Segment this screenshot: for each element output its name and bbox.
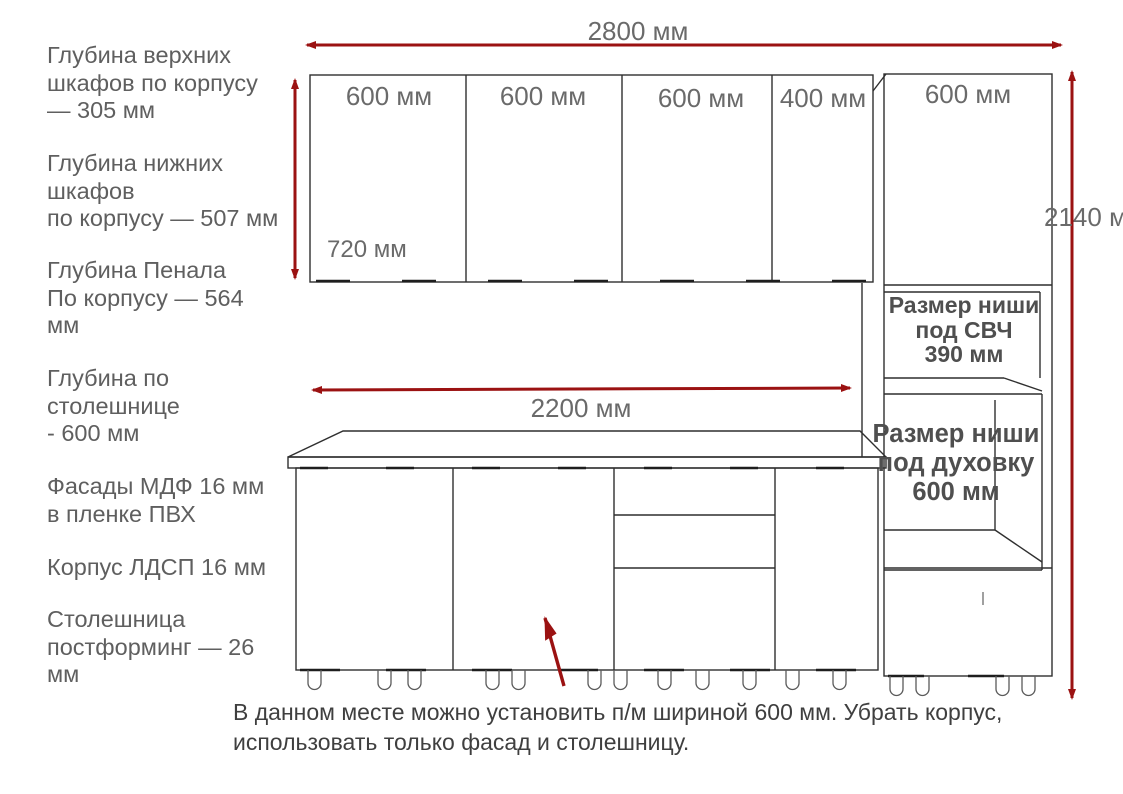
microwave-niche-label: Размер ниши под СВЧ 390 мм: [885, 293, 1043, 367]
dishwasher-note: В данном месте можно установить п/м шири…: [233, 697, 1073, 757]
note-pencil-depth: Глубина Пенала По корпусу — 564 мм: [47, 257, 305, 340]
total-height-label: 2140 мм: [1044, 202, 1123, 233]
countertop-width-arrow: [313, 388, 850, 390]
note-facades: Фасады МДФ 16 мм в пленке ПВХ: [47, 473, 305, 528]
dimension-arrows: [295, 45, 1072, 698]
upper-cabinet-width-label: 600 мм: [309, 81, 469, 112]
note-countertop-depth: Глубина по столешнице - 600 мм: [47, 365, 305, 448]
tall-cabinet-width-label: 600 мм: [888, 79, 1048, 110]
note-lower-depth: Глубина нижних шкафов по корпусу — 507 м…: [47, 150, 305, 233]
dishwasher-pointer-arrow: [545, 618, 564, 686]
upper-cabinet-width-label: 600 мм: [463, 81, 623, 112]
countertop-width-label: 2200 мм: [481, 393, 681, 424]
kitchen-drawing-page: Глубина верхних шкафов по корпусу — 305 …: [0, 0, 1123, 794]
base-cabinets: [296, 468, 878, 670]
cabinet-legs: [308, 670, 1035, 696]
note-worktop: Столешница постформинг — 26 мм: [47, 606, 305, 689]
upper-cabinet-width-label: 400 мм: [743, 83, 903, 114]
upper-cabinet-height-label: 720 мм: [327, 236, 437, 264]
total-width-label: 2800 мм: [538, 16, 738, 47]
countertop: [288, 431, 886, 468]
oven-niche-label: Размер ниши под духовку 600 мм: [866, 420, 1046, 507]
tall-cabinet: [862, 74, 1052, 676]
note-carcass: Корпус ЛДСП 16 мм: [47, 554, 305, 582]
cabinet-outlines: [288, 74, 1052, 696]
note-upper-depth: Глубина верхних шкафов по корпусу — 305 …: [47, 42, 305, 125]
